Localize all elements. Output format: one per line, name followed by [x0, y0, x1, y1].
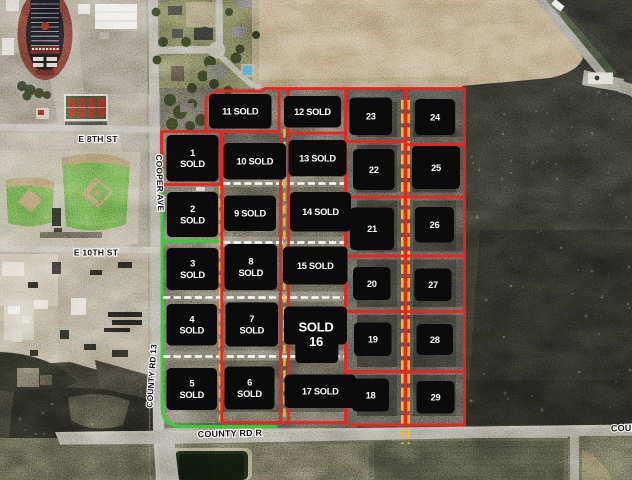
svg-text:6: 6 [247, 378, 252, 388]
svg-text:20: 20 [367, 279, 377, 289]
svg-text:SOLD: SOLD [179, 326, 204, 336]
svg-text:SOLD: SOLD [180, 270, 205, 280]
svg-text:SOLD: SOLD [179, 390, 204, 400]
svg-text:E 10TH ST: E 10TH ST [74, 248, 119, 258]
svg-text:11 SOLD: 11 SOLD [222, 107, 259, 117]
svg-text:15 SOLD: 15 SOLD [297, 261, 334, 271]
svg-text:25: 25 [431, 163, 441, 173]
svg-text:COUNTY RD R: COUNTY RD R [198, 428, 263, 440]
svg-text:18: 18 [366, 390, 376, 400]
svg-text:17 SOLD: 17 SOLD [302, 387, 339, 397]
svg-text:29: 29 [431, 393, 441, 403]
svg-text:16: 16 [309, 334, 323, 349]
svg-text:13 SOLD: 13 SOLD [299, 153, 336, 163]
svg-text:1: 1 [190, 148, 195, 158]
svg-text:14 SOLD: 14 SOLD [302, 207, 339, 217]
svg-text:26: 26 [430, 220, 440, 230]
svg-text:SOLD: SOLD [239, 325, 264, 335]
svg-text:22: 22 [369, 165, 379, 175]
svg-text:COUNTY RD 13: COUNTY RD 13 [144, 344, 158, 408]
svg-text:SOLD: SOLD [180, 159, 205, 169]
svg-text:COUNTY RD R: COUNTY RD R [611, 421, 632, 433]
svg-text:9 SOLD: 9 SOLD [234, 209, 266, 219]
svg-text:10 SOLD: 10 SOLD [236, 157, 273, 167]
svg-text:12 SOLD: 12 SOLD [294, 107, 331, 117]
svg-text:24: 24 [430, 112, 441, 122]
svg-text:27: 27 [428, 280, 438, 290]
svg-text:SOLD: SOLD [237, 389, 262, 399]
svg-text:SOLD: SOLD [238, 268, 263, 278]
svg-text:2: 2 [190, 204, 195, 214]
svg-text:E 8TH ST: E 8TH ST [78, 134, 118, 144]
svg-text:3: 3 [190, 259, 195, 269]
svg-text:8: 8 [248, 257, 253, 267]
svg-text:28: 28 [430, 335, 440, 345]
svg-text:SOLD: SOLD [180, 215, 205, 225]
svg-text:19: 19 [368, 335, 378, 345]
svg-text:21: 21 [367, 224, 377, 234]
svg-text:SOLD: SOLD [299, 320, 334, 335]
svg-text:23: 23 [366, 112, 376, 122]
svg-text:5: 5 [189, 379, 194, 389]
svg-text:7: 7 [249, 314, 254, 324]
svg-text:COOPER AVE: COOPER AVE [154, 154, 166, 211]
